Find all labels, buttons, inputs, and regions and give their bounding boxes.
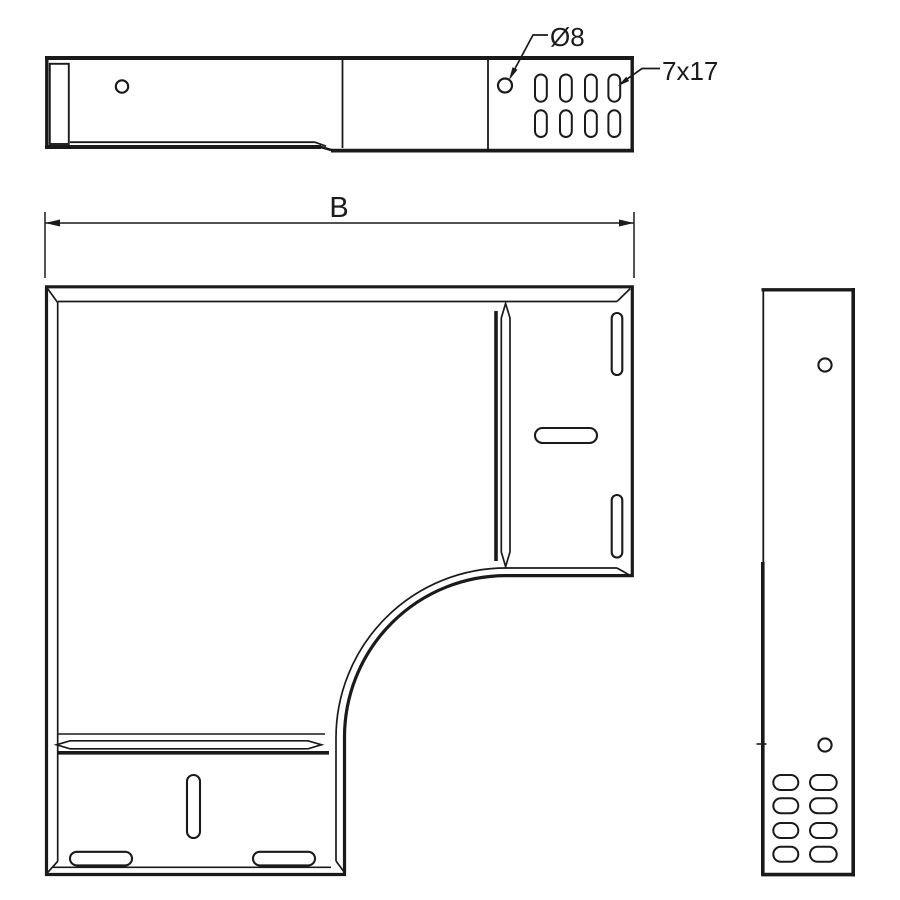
- cable-tray-bend-drawing: Ø8 7x17 B: [0, 0, 900, 900]
- slot: [70, 852, 132, 866]
- technical-drawing-page: Ø8 7x17 B: [0, 0, 900, 900]
- slot: [585, 75, 597, 102]
- slot: [810, 823, 837, 838]
- slot: [560, 110, 572, 137]
- slot: [612, 313, 623, 375]
- dim-b-label: B: [329, 192, 348, 224]
- plan-outer-outline: [47, 287, 633, 875]
- seam-lens: [501, 304, 510, 567]
- top-view-hole-left: [116, 80, 128, 92]
- side-view: [757, 288, 856, 877]
- leader-hole-d8-arrowhead: [509, 67, 518, 80]
- side-slot-grid: [773, 775, 836, 862]
- slot: [535, 75, 547, 102]
- slot: [608, 75, 620, 102]
- slot: [810, 775, 837, 790]
- slot: [253, 852, 315, 866]
- slot: [560, 75, 572, 102]
- seam-lens: [57, 741, 322, 749]
- slot: [612, 495, 623, 558]
- slot: [773, 775, 798, 790]
- slot: [187, 775, 200, 838]
- dim-arrow-left: [45, 220, 60, 227]
- top-view-end-flange: [50, 64, 69, 144]
- slot: [810, 847, 837, 862]
- slot: [535, 110, 547, 137]
- slot: [585, 110, 597, 137]
- dim-arrow-right: [619, 220, 634, 227]
- slot: [535, 428, 597, 443]
- top-view: [45, 56, 634, 152]
- dimension-b: B: [45, 192, 634, 278]
- slot: [773, 847, 798, 862]
- slot: [608, 110, 620, 137]
- slot: [773, 798, 798, 813]
- slot: [773, 823, 798, 838]
- top-view-bottom-step: [319, 147, 333, 151]
- slot: [810, 798, 837, 813]
- top-view-hole-d8: [498, 79, 512, 93]
- side-hole-upper: [818, 358, 831, 371]
- plan-view: [47, 287, 633, 875]
- top-view-slot-grid: [535, 75, 620, 138]
- side-hole-lower: [818, 738, 831, 751]
- hole-diameter-label: Ø8: [550, 22, 585, 52]
- slot-size-label: 7x17: [662, 56, 718, 86]
